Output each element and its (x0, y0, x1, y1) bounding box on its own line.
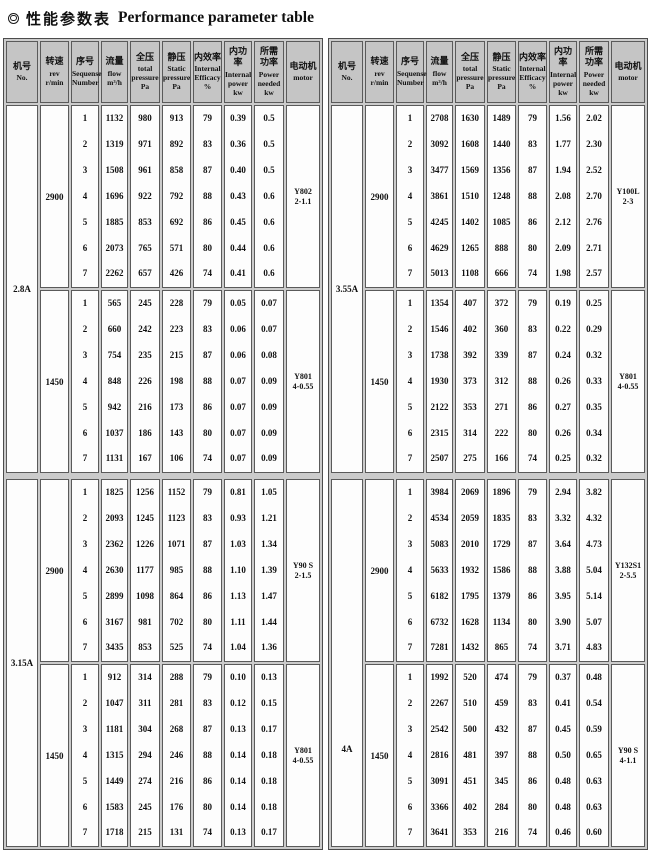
cell-value: 1.44 (255, 618, 283, 627)
col-static-pressure-cell: 228223215198173143106 (162, 290, 191, 473)
cell-value: 74 (519, 269, 546, 278)
col-internal-efficacy-cell: 79838788868074 (518, 105, 547, 288)
header-motor: 电动机motor (611, 41, 645, 103)
motor-cell: Y8022-1.1 (286, 105, 320, 288)
col-internal-efficacy-cell: 79838788868074 (193, 105, 222, 288)
cell-value: 3 (72, 540, 98, 549)
cell-value: 79 (519, 488, 546, 497)
cell-value: 79 (194, 114, 221, 123)
cell-value: 3 (397, 166, 423, 175)
cell-value: 80 (519, 618, 546, 627)
cell-value: 3091 (427, 777, 452, 786)
cell-value: 853 (131, 643, 159, 652)
cell-value: 1123 (163, 514, 190, 523)
cell-value: 5633 (427, 566, 452, 575)
header-flow: 流量flow m³/h (101, 41, 128, 103)
cell-value: 5 (72, 218, 98, 227)
cell-value: 2 (72, 140, 98, 149)
cell-value: 0.27 (550, 403, 576, 412)
motor-model-label: 4-1.1 (612, 756, 644, 766)
header-sequence-zh: 序号 (397, 57, 423, 68)
cell-value: 0.46 (550, 828, 576, 837)
cell-value: 1 (397, 114, 423, 123)
cell-value: 7 (72, 643, 98, 652)
cell-value: 5013 (427, 269, 452, 278)
cell-value: 0.09 (255, 403, 283, 412)
cell-value: 2.71 (580, 244, 608, 253)
cell-value: 525 (163, 643, 190, 652)
cell-value: 510 (456, 699, 484, 708)
data-block-row: 1450123456791210471181131514491583171831… (6, 664, 320, 847)
cell-value: 0.10 (225, 673, 251, 682)
cell-value: 3 (397, 351, 423, 360)
cell-value: 1319 (102, 140, 127, 149)
motor-cell: Y90 S2-1.5 (286, 479, 320, 662)
cell-value: 2507 (427, 454, 452, 463)
cell-value: 0.09 (255, 377, 283, 386)
cell-value: 1132 (102, 114, 127, 123)
cell-value: 228 (163, 299, 190, 308)
cell-value: 1.56 (550, 114, 576, 123)
cell-value: 792 (163, 192, 190, 201)
cell-value: 1356 (488, 166, 515, 175)
cell-value: 74 (519, 454, 546, 463)
header-total-pressure: 全压total pressure Pa (130, 41, 160, 103)
col-total-pressure-cell: 12561245122611771098981853 (130, 479, 160, 662)
header-total-pressure-zh: 全压 (456, 53, 484, 64)
col-total-pressure-cell: 1630160815691510140212651108 (455, 105, 485, 288)
motor-model-label: Y801 (287, 746, 319, 756)
cell-value: 3984 (427, 488, 452, 497)
col-total-pressure-cell: 245242235226216186167 (130, 290, 160, 473)
cell-value: 83 (194, 325, 221, 334)
cell-value: 980 (131, 114, 159, 123)
cell-value: 0.25 (550, 454, 576, 463)
cell-value: 271 (488, 403, 515, 412)
model-label: 3.15A (11, 658, 33, 668)
cell-value: 86 (194, 592, 221, 601)
col-power-needed-cell: 3.824.324.735.045.145.074.83 (579, 479, 609, 662)
cell-value: 4534 (427, 514, 452, 523)
cell-value: 4245 (427, 218, 452, 227)
cell-value: 2 (397, 325, 423, 334)
cell-value: 942 (102, 403, 127, 412)
cell-value: 1.10 (225, 566, 251, 575)
cell-value: 372 (488, 299, 515, 308)
cell-value: 2.57 (580, 269, 608, 278)
cell-value: 1.21 (255, 514, 283, 523)
cell-value: 1696 (102, 192, 127, 201)
cell-value: 2073 (102, 244, 127, 253)
cell-value: 74 (194, 643, 221, 652)
col-internal-power-cell: 0.370.410.450.500.480.480.46 (549, 664, 577, 847)
cell-value: 373 (456, 377, 484, 386)
cell-value: 173 (163, 403, 190, 412)
cell-value: 4 (72, 192, 98, 201)
cell-value: 0.39 (225, 114, 251, 123)
header-internal-power-zh: 内功率 (550, 47, 576, 69)
cell-value: 1256 (131, 488, 159, 497)
cell-value: 4 (397, 566, 423, 575)
cell-value: 216 (131, 403, 159, 412)
cell-value: 1177 (131, 566, 159, 575)
cell-value: 0.63 (580, 803, 608, 812)
cell-value: 0.60 (580, 828, 608, 837)
cell-value: 215 (131, 828, 159, 837)
cell-value: 0.41 (225, 269, 251, 278)
performance-table-right: 机号No.转速rev r/min序号Sequense Number流量flow … (328, 38, 648, 850)
cell-value: 0.06 (225, 351, 251, 360)
cell-value: 87 (194, 351, 221, 360)
cell-value: 459 (488, 699, 515, 708)
header-internal-power: 内功率Internal power kw (549, 41, 577, 103)
col-static-pressure-cell: 372360339312271222166 (487, 290, 516, 473)
cell-value: 5.14 (580, 592, 608, 601)
cell-value: 2.94 (550, 488, 576, 497)
speed-cell: 1450 (365, 664, 394, 847)
col-internal-power-cell: 0.390.360.400.430.450.440.41 (224, 105, 252, 288)
cell-value: 660 (102, 325, 127, 334)
cell-value: 4 (72, 377, 98, 386)
cell-value: 0.45 (550, 725, 576, 734)
model-label: 3.55A (336, 284, 358, 294)
cell-value: 0.24 (550, 351, 576, 360)
cell-value: 223 (163, 325, 190, 334)
col-flow-cell: 3984453450835633618267327281 (426, 479, 453, 662)
cell-value: 985 (163, 566, 190, 575)
cell-value: 4629 (427, 244, 452, 253)
col-internal-efficacy-cell: 79838788868074 (518, 664, 547, 847)
cell-value: 88 (519, 377, 546, 386)
cell-value: 1248 (488, 192, 515, 201)
cell-value: 888 (488, 244, 515, 253)
cell-value: 1134 (488, 618, 515, 627)
cell-value: 245 (131, 299, 159, 308)
col-sequence-cell: 1234567 (396, 479, 424, 662)
col-total-pressure-cell: 2069205920101932179516281432 (455, 479, 485, 662)
cell-value: 1992 (427, 673, 452, 682)
cell-value: 3 (397, 725, 423, 734)
col-sequence-cell: 1234567 (71, 290, 99, 473)
cell-value: 0.5 (255, 166, 283, 175)
data-block-row: 2.8A290012345671132131915081696188520732… (6, 105, 320, 288)
header-power-needed: 所需 功率Power needed kw (579, 41, 609, 103)
col-sequence-cell: 1234567 (396, 105, 424, 288)
cell-value: 571 (163, 244, 190, 253)
col-static-pressure-cell: 14891440135612481085888666 (487, 105, 516, 288)
cell-value: 83 (519, 325, 546, 334)
cell-value: 3861 (427, 192, 452, 201)
header-power-needed-en: Power needed kw (255, 70, 283, 97)
col-internal-efficacy-cell: 79838788868074 (518, 479, 547, 662)
cell-value: 1265 (456, 244, 484, 253)
motor-model-label: Y801 (287, 372, 319, 382)
cell-value: 268 (163, 725, 190, 734)
cell-value: 167 (131, 454, 159, 463)
cell-value: 1930 (427, 377, 452, 386)
cell-value: 0.37 (550, 673, 576, 682)
cell-value: 131 (163, 828, 190, 837)
cell-value: 2542 (427, 725, 452, 734)
header-total-pressure-en: total pressure Pa (456, 64, 484, 91)
cell-value: 143 (163, 429, 190, 438)
cell-value: 83 (194, 140, 221, 149)
cell-value: 215 (163, 351, 190, 360)
cell-value: 3.90 (550, 618, 576, 627)
cell-value: 864 (163, 592, 190, 601)
header-static-pressure: 静压Static pressure Pa (487, 41, 516, 103)
cell-value: 6182 (427, 592, 452, 601)
cell-value: 858 (163, 166, 190, 175)
section-divider (6, 475, 320, 477)
data-block-row: 3.55A29001234567270830923477386142454629… (331, 105, 645, 288)
cell-value: 1508 (102, 166, 127, 175)
cell-value: 314 (456, 429, 484, 438)
cell-value: 1.11 (225, 618, 251, 627)
cell-value: 80 (519, 429, 546, 438)
cell-value: 2.08 (550, 192, 576, 201)
cell-value: 0.07 (225, 429, 251, 438)
cell-value: 0.5 (255, 140, 283, 149)
cell-value: 451 (456, 777, 484, 786)
cell-value: 2010 (456, 540, 484, 549)
cell-value: 754 (102, 351, 127, 360)
cell-value: 2 (72, 699, 98, 708)
col-internal-power-cell: 0.810.931.031.101.131.111.04 (224, 479, 252, 662)
cell-value: 79 (519, 114, 546, 123)
cell-value: 0.48 (550, 803, 576, 812)
header-internal-power-en: Internal power kw (225, 70, 251, 97)
cell-value: 0.32 (580, 454, 608, 463)
header-motor-zh: 电动机 (287, 62, 319, 73)
header-static-pressure-en: Static pressure Pa (488, 64, 515, 91)
model-label: 2.8A (13, 284, 31, 294)
cell-value: 2 (72, 514, 98, 523)
cell-value: 339 (488, 351, 515, 360)
cell-value: 0.63 (580, 777, 608, 786)
cell-value: 216 (488, 828, 515, 837)
cell-value: 0.59 (580, 725, 608, 734)
page-title: 性能参数表 Performance parameter table (0, 0, 650, 30)
cell-value: 692 (163, 218, 190, 227)
model-label: 4A (332, 744, 362, 846)
cell-value: 913 (163, 114, 190, 123)
cell-value: 1569 (456, 166, 484, 175)
cell-value: 281 (163, 699, 190, 708)
cell-value: 0.09 (255, 429, 283, 438)
cell-value: 88 (194, 566, 221, 575)
cell-value: 1510 (456, 192, 484, 201)
cell-value: 7 (397, 454, 423, 463)
cell-value: 80 (194, 803, 221, 812)
header-static-pressure-zh: 静压 (488, 53, 515, 64)
col-flow-cell: 912104711811315144915831718 (101, 664, 128, 847)
col-static-pressure-cell: 288281268246216176131 (162, 664, 191, 847)
cell-value: 1108 (456, 269, 484, 278)
cell-value: 1.36 (255, 643, 283, 652)
cell-value: 2.70 (580, 192, 608, 201)
col-power-needed-cell: 0.070.070.080.090.090.090.09 (254, 290, 284, 473)
header-sequence-en: Sequense Number (72, 69, 98, 87)
cell-value: 235 (131, 351, 159, 360)
motor-model-label: Y100L (612, 187, 644, 197)
motor-model-label: 4-0.55 (287, 756, 319, 766)
col-flow-cell: 1825209323622630289931673435 (101, 479, 128, 662)
header-flow-en: flow m³/h (102, 69, 127, 87)
cell-value: 407 (456, 299, 484, 308)
header-sequence-zh: 序号 (72, 57, 98, 68)
cell-value: 1047 (102, 699, 127, 708)
cell-value: 0.41 (550, 699, 576, 708)
col-total-pressure-cell: 520510500481451402353 (455, 664, 485, 847)
cell-value: 86 (519, 777, 546, 786)
header-internal-efficacy-zh: 内效率 (519, 53, 546, 64)
cell-value: 1 (397, 488, 423, 497)
motor-cell: Y100L2-3 (611, 105, 645, 288)
header-static-pressure-en: Static pressure Pa (163, 64, 190, 91)
cell-value: 0.35 (580, 403, 608, 412)
cell-value: 3 (72, 351, 98, 360)
header-flow-zh: 流量 (427, 57, 452, 68)
cell-value: 1379 (488, 592, 515, 601)
header-rev-en: rev r/min (366, 69, 393, 87)
model-cell: 2.8A (6, 105, 38, 473)
header-rev-zh: 转速 (366, 57, 393, 68)
cell-value: 1718 (102, 828, 127, 837)
header-total-pressure-zh: 全压 (131, 53, 159, 64)
cell-value: 0.07 (255, 299, 283, 308)
cell-value: 7 (397, 269, 423, 278)
cell-value: 0.6 (255, 244, 283, 253)
cell-value: 311 (131, 699, 159, 708)
cell-value: 392 (456, 351, 484, 360)
cell-value: 0.18 (255, 803, 283, 812)
cell-value: 0.48 (550, 777, 576, 786)
cell-value: 2 (397, 514, 423, 523)
col-internal-power-cell: 0.100.120.130.140.140.140.13 (224, 664, 252, 847)
cell-value: 88 (194, 751, 221, 760)
cell-value: 3 (72, 166, 98, 175)
cell-value: 2.12 (550, 218, 576, 227)
cell-value: 5 (397, 403, 423, 412)
col-power-needed-cell: 0.130.150.170.180.180.180.17 (254, 664, 284, 847)
cell-value: 0.08 (255, 351, 283, 360)
cell-value: 186 (131, 429, 159, 438)
motor-model-label: Y802 (287, 187, 319, 197)
cell-value: 3641 (427, 828, 452, 837)
cell-value: 1 (72, 299, 98, 308)
motor-model-label: 2-5.5 (612, 571, 644, 581)
cell-value: 88 (519, 192, 546, 201)
cell-value: 1181 (102, 725, 127, 734)
col-flow-cell: 2708309234773861424546295013 (426, 105, 453, 288)
cell-value: 0.07 (225, 454, 251, 463)
cell-value: 79 (194, 299, 221, 308)
cell-value: 981 (131, 618, 159, 627)
cell-value: 6 (72, 244, 98, 253)
data-block-row: 3.15A29001234567182520932362263028993167… (6, 479, 320, 662)
header-no-zh: 机号 (7, 62, 37, 73)
header-static-pressure: 静压Static pressure Pa (162, 41, 191, 103)
motor-model-label: 4-0.55 (287, 382, 319, 392)
cell-value: 4 (397, 192, 423, 201)
col-static-pressure-cell: 913892858792692571426 (162, 105, 191, 288)
cell-value: 83 (194, 699, 221, 708)
cell-value: 0.18 (255, 751, 283, 760)
col-internal-power-cell: 1.561.771.942.082.122.091.98 (549, 105, 577, 288)
cell-value: 402 (456, 325, 484, 334)
cell-value: 87 (194, 540, 221, 549)
cell-value: 865 (488, 643, 515, 652)
cell-value: 80 (194, 618, 221, 627)
cell-value: 176 (163, 803, 190, 812)
cell-value: 657 (131, 269, 159, 278)
cell-value: 0.14 (225, 803, 251, 812)
cell-value: 6732 (427, 618, 452, 627)
cell-value: 87 (519, 351, 546, 360)
motor-model-label: 2-3 (612, 197, 644, 207)
cell-value: 86 (194, 403, 221, 412)
header-no: 机号No. (331, 41, 363, 103)
header-power-needed-zh: 所需 功率 (255, 47, 283, 69)
cell-value: 1.77 (550, 140, 576, 149)
header-power-needed-en: Power needed kw (580, 70, 608, 97)
header-motor-zh: 电动机 (612, 62, 644, 73)
cell-value: 1226 (131, 540, 159, 549)
cell-value: 198 (163, 377, 190, 386)
cell-value: 0.33 (580, 377, 608, 386)
cell-value: 4 (397, 751, 423, 760)
cell-value: 2 (72, 325, 98, 334)
header-internal-power-zh: 内功率 (225, 47, 251, 69)
cell-value: 5 (72, 592, 98, 601)
cell-value: 2122 (427, 403, 452, 412)
cell-value: 87 (194, 166, 221, 175)
cell-value: 86 (519, 592, 546, 601)
cell-value: 5 (397, 777, 423, 786)
cell-value: 0.81 (225, 488, 251, 497)
col-internal-efficacy-cell: 79838788868074 (518, 290, 547, 473)
cell-value: 0.93 (225, 514, 251, 523)
col-internal-power-cell: 0.050.060.060.070.070.070.07 (224, 290, 252, 473)
cell-value: 0.32 (580, 351, 608, 360)
header-internal-efficacy-en: Internal Efficacy % (519, 64, 546, 91)
cell-value: 666 (488, 269, 515, 278)
cell-value: 0.05 (225, 299, 251, 308)
cell-value: 79 (519, 673, 546, 682)
cell-value: 0.15 (255, 699, 283, 708)
cell-value: 0.5 (255, 114, 283, 123)
cell-value: 3 (397, 540, 423, 549)
model-cell: 3.55A (331, 105, 363, 473)
cell-value: 6 (72, 618, 98, 627)
cell-value: 3435 (102, 643, 127, 652)
cell-value: 242 (131, 325, 159, 334)
motor-cell: Y8014-0.55 (286, 664, 320, 847)
col-sequence-cell: 1234567 (71, 664, 99, 847)
cell-value: 1546 (427, 325, 452, 334)
cell-value: 0.65 (580, 751, 608, 760)
cell-value: 1825 (102, 488, 127, 497)
page-title-en: Performance parameter table (118, 9, 314, 27)
motor-cell: Y8014-0.55 (286, 290, 320, 473)
cell-value: 0.36 (225, 140, 251, 149)
cell-value: 353 (456, 403, 484, 412)
cell-value: 0.06 (225, 325, 251, 334)
cell-value: 88 (194, 377, 221, 386)
cell-value: 5 (72, 403, 98, 412)
cell-value: 345 (488, 777, 515, 786)
